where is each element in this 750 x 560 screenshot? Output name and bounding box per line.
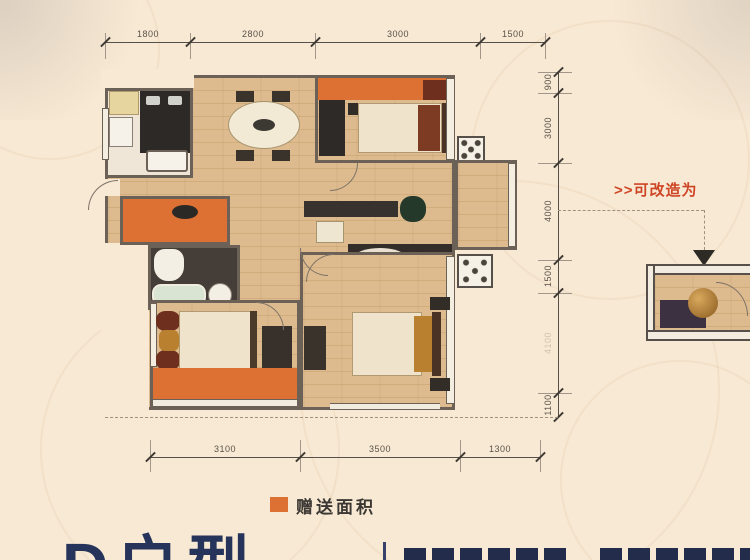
gift-area-label: 赠送面积 xyxy=(296,493,376,518)
dim-tick xyxy=(315,33,316,59)
bed-pillow xyxy=(156,350,180,370)
tv-cabinet xyxy=(304,201,398,217)
dim-label: 1800 xyxy=(137,29,159,39)
wardrobe xyxy=(319,100,345,156)
detail-room-top-wall xyxy=(646,264,750,275)
kitchen-sink xyxy=(146,150,188,172)
dining-table-centerpiece xyxy=(253,119,275,131)
bed xyxy=(352,312,422,376)
dim-tick xyxy=(105,33,106,59)
bed xyxy=(179,311,251,371)
floor-plan-page: 1800 2800 3000 1500 3100 3500 1300 900 3… xyxy=(0,0,750,560)
dim-label: 4100 xyxy=(543,332,553,354)
bed-pillow xyxy=(156,311,180,331)
dim-label: 2800 xyxy=(242,29,264,39)
kitchen-counter xyxy=(109,91,139,115)
convert-annotation-label: >>可改造为 xyxy=(614,179,698,200)
detail-room-bottom-wall xyxy=(646,330,750,341)
plant xyxy=(400,196,426,222)
bed-pillows xyxy=(414,316,434,372)
fridge xyxy=(109,117,133,147)
dim-label: 3000 xyxy=(387,29,409,39)
dim-label: 1100 xyxy=(543,394,553,415)
toilet xyxy=(154,249,184,281)
dim-label: 3100 xyxy=(214,444,236,454)
footer-subtext-cropped xyxy=(404,548,750,560)
detail-room-lamp xyxy=(688,288,718,318)
dim-tick xyxy=(545,33,546,59)
annotation-dashed-line xyxy=(558,210,704,211)
dim-tick xyxy=(190,33,191,59)
gift-area-swatch xyxy=(270,497,288,512)
dim-label: 3500 xyxy=(369,444,391,454)
title-separator xyxy=(383,542,386,560)
nightstand xyxy=(430,378,450,391)
dresser xyxy=(262,326,292,370)
stove-burner xyxy=(146,96,160,105)
dimension-line-bottom xyxy=(150,457,540,458)
dining-chair xyxy=(272,91,290,102)
unit-title: D户型 xyxy=(62,534,257,560)
kitchen-window xyxy=(102,108,109,160)
entry-door-arc xyxy=(88,180,118,210)
dim-label: 3000 xyxy=(543,117,553,139)
dining-chair xyxy=(236,150,254,161)
dim-label: 1300 xyxy=(489,444,511,454)
stove-burner xyxy=(168,96,182,105)
dim-label: 1500 xyxy=(502,29,524,39)
dim-extension-line xyxy=(105,417,558,418)
bed-cushion xyxy=(159,330,179,351)
gift-balcony-bottom xyxy=(153,368,297,400)
dining-chair xyxy=(272,150,290,161)
coffee-table xyxy=(316,221,344,243)
flue-duct xyxy=(457,254,493,288)
wall-infill xyxy=(446,78,455,160)
dim-tick xyxy=(480,33,481,59)
bed-pillows xyxy=(418,105,440,151)
plan-notch xyxy=(101,69,194,88)
desk xyxy=(304,326,326,370)
annotation-dashed-line xyxy=(704,210,705,250)
dining-chair xyxy=(236,91,254,102)
bed-headboard xyxy=(432,312,441,376)
wall-infill xyxy=(508,163,516,247)
dim-label: 1500 xyxy=(543,265,553,287)
balcony-window xyxy=(153,399,297,407)
nightstand xyxy=(430,297,450,310)
bedroom-window xyxy=(330,403,440,410)
dim-label: 900 xyxy=(543,74,553,91)
plan-notch xyxy=(101,243,149,413)
gift-room xyxy=(120,196,230,245)
gift-room-table xyxy=(172,205,198,219)
dimension-line-right xyxy=(558,72,559,417)
dim-label: 4000 xyxy=(543,200,553,222)
nightstand xyxy=(348,103,358,115)
flue-duct xyxy=(457,136,485,163)
